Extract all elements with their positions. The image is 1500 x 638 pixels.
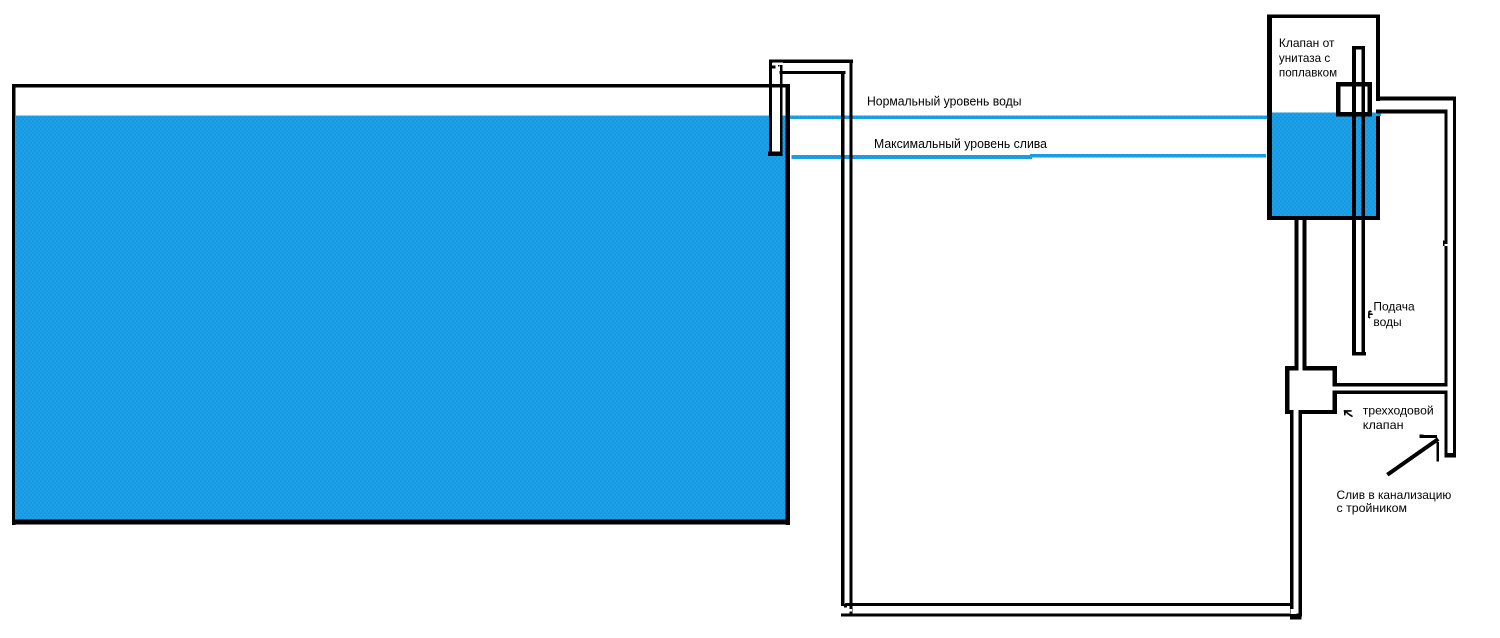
- svg-text:унитаза с: унитаза с: [1279, 51, 1330, 65]
- svg-text:Клапан от: Клапан от: [1279, 36, 1335, 50]
- svg-text:Подача: Подача: [1373, 299, 1415, 313]
- svg-text:Нормальный уровень воды: Нормальный уровень воды: [867, 94, 1022, 109]
- svg-text:с тройником: с тройником: [1337, 501, 1408, 515]
- svg-text:поплавком: поплавком: [1279, 66, 1337, 80]
- svg-text:Максимальный уровень слива: Максимальный уровень слива: [874, 136, 1048, 151]
- svg-text:воды: воды: [1373, 315, 1401, 329]
- svg-text:трехходовой: трехходовой: [1363, 403, 1434, 417]
- svg-text:клапан: клапан: [1363, 418, 1404, 432]
- svg-text:Слив в канализацию: Слив в канализацию: [1337, 488, 1452, 502]
